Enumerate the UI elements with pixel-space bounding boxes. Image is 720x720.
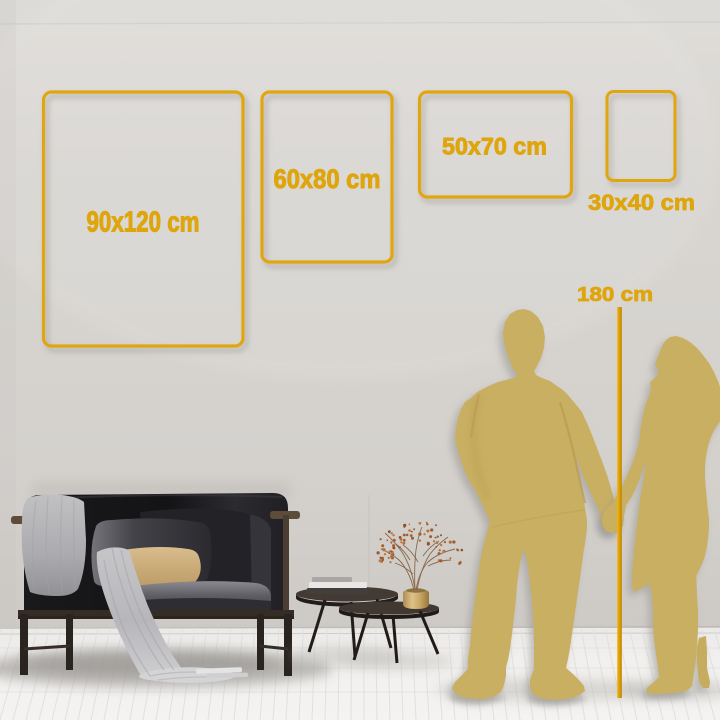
svg-text:30x40 cm: 30x40 cm xyxy=(588,190,695,215)
svg-text:50x70 cm: 50x70 cm xyxy=(442,134,547,161)
svg-text:180 cm: 180 cm xyxy=(577,284,653,306)
svg-text:60x80 cm: 60x80 cm xyxy=(274,164,381,194)
svg-text:90x120 cm: 90x120 cm xyxy=(87,207,200,239)
